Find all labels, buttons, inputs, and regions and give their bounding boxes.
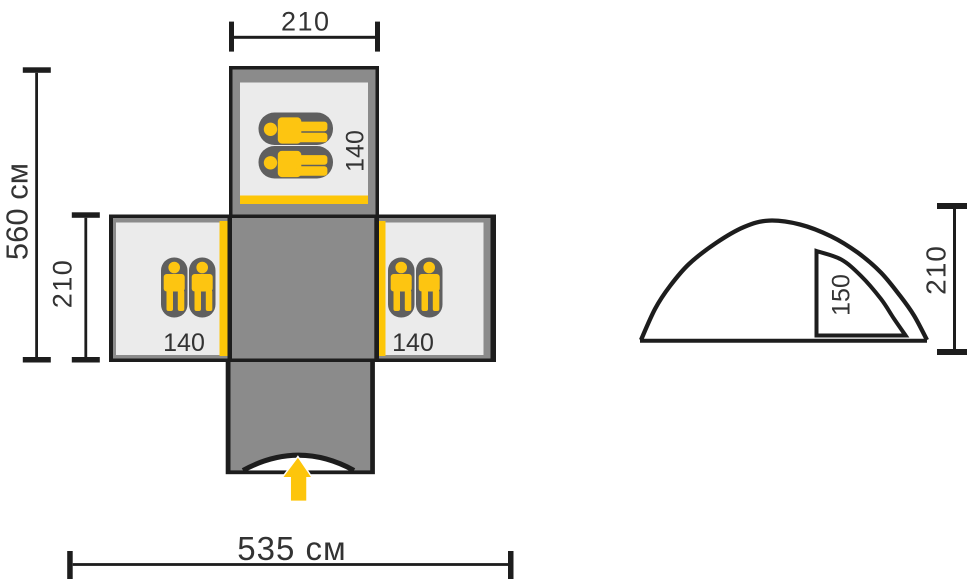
- svg-text:560 см: 560 см: [0, 163, 35, 260]
- svg-text:210: 210: [48, 259, 78, 309]
- svg-text:150: 150: [828, 274, 856, 316]
- svg-text:210: 210: [921, 245, 952, 295]
- svg-text:210: 210: [281, 7, 331, 37]
- svg-text:140: 140: [342, 130, 370, 172]
- svg-text:535 см: 535 см: [237, 530, 346, 567]
- svg-text:140: 140: [163, 329, 205, 357]
- svg-text:140: 140: [392, 329, 434, 357]
